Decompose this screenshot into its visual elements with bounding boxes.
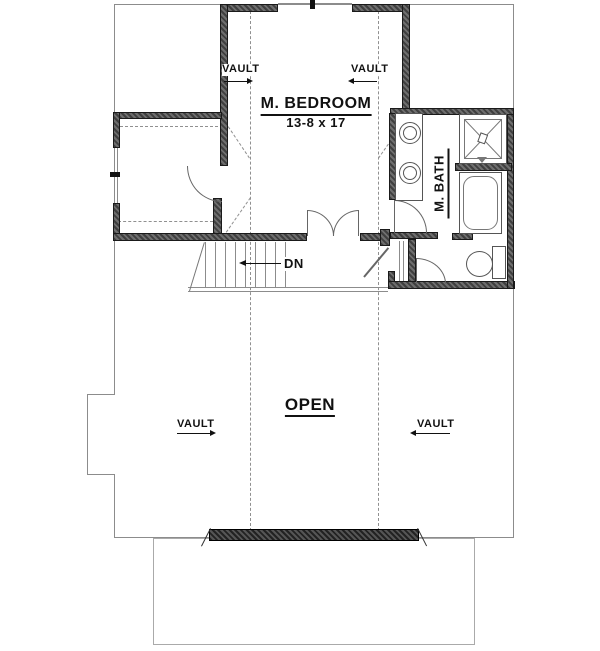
vault-arrow-line [416, 433, 450, 434]
vault-hip-dashed-lower-left [223, 197, 251, 236]
wall-closet-top [113, 112, 222, 119]
vault-label-lower-right: VAULT [417, 419, 455, 431]
vault-break-line-right [378, 6, 379, 531]
wall-bath-entry-pier [380, 229, 390, 246]
stair-tread [275, 242, 276, 288]
wall-linen-top [390, 232, 438, 239]
wall-bath-south [388, 281, 515, 289]
wall-top-left-segment [220, 4, 278, 12]
vault-break-line-left [250, 6, 251, 531]
stair-tread [205, 242, 206, 288]
wall-bath-right [507, 108, 514, 289]
vault-arrow-head-left [348, 78, 354, 84]
vault-arrow-head-left [410, 430, 416, 436]
down-arrow-head [239, 260, 246, 266]
landing-door-leaf [363, 247, 389, 277]
vault-label-upper-right: VAULT [351, 64, 389, 76]
outline-notch-top [87, 394, 115, 395]
floor-plan: M. BEDROOM 13-8 x 17 M. BATH OPEN DN VAU… [0, 0, 600, 651]
toilet-door-arc [416, 258, 446, 284]
wall-shower-tub-divider [455, 163, 512, 171]
bedroom-dimension: 13-8 x 17 [286, 116, 345, 130]
closet-shelf-dashed-lower [118, 221, 213, 222]
vault-arrow-head-right [247, 78, 253, 84]
stair-tread [235, 242, 236, 288]
stair-tread [255, 242, 256, 288]
bath-label: M. BATH [433, 149, 450, 219]
down-arrow-line [245, 263, 281, 264]
shower-drain-mark [477, 157, 487, 163]
vault-arrow-head-right [210, 430, 216, 436]
wall-closet-left-upper [113, 112, 120, 148]
vault-arrow-line [224, 81, 248, 82]
landing-edge-line-1 [188, 287, 388, 288]
stair-tread [225, 242, 226, 288]
sink-bowl-inner [403, 166, 417, 180]
wall-bedroom-right [402, 4, 410, 112]
stair-tread [265, 242, 266, 288]
linen-shelf-line [403, 241, 404, 281]
wall-tub-toilet-stub [452, 233, 473, 240]
vault-arrow-line [177, 433, 211, 434]
toilet-tank [492, 246, 506, 279]
stair-break-line [189, 242, 205, 291]
vault-label-upper-left: VAULT [222, 64, 260, 76]
vault-arrow-line [353, 81, 377, 82]
double-door-left-leaf [307, 210, 334, 236]
bedroom-window-sill [278, 3, 352, 4]
wall-closet-pier [213, 198, 222, 235]
vault-label-lower-left: VAULT [177, 419, 215, 431]
wall-bedroom-left [220, 4, 228, 166]
landing-edge-line-2 [188, 291, 388, 292]
closet-door-arc [187, 166, 222, 202]
linen-shelf-line [399, 241, 400, 281]
closet-shelf-dashed-upper [120, 126, 218, 127]
outline-notch-left [87, 394, 88, 475]
bathtub-inner [463, 176, 498, 230]
outline-notch-bottom [87, 474, 115, 475]
sink-bowl-inner [403, 126, 417, 140]
down-label: DN [284, 257, 304, 271]
shower-x-pattern [464, 119, 502, 159]
outline-left-lower [114, 474, 115, 538]
stair-tread [215, 242, 216, 288]
closet-window-mullion [110, 172, 120, 177]
bath-door-arc [394, 200, 427, 233]
bedroom-window-mullion [310, 0, 315, 9]
toilet-bowl [466, 251, 493, 277]
open-label: OPEN [285, 396, 335, 417]
bedroom-label: M. BEDROOM [261, 96, 372, 116]
deck-outline [153, 538, 475, 645]
double-door-right-leaf [333, 210, 359, 236]
outline-left-upper [114, 4, 115, 395]
wall-south-left [113, 233, 307, 241]
ridge-beam [209, 529, 419, 541]
wall-top-right-segment [352, 4, 408, 12]
